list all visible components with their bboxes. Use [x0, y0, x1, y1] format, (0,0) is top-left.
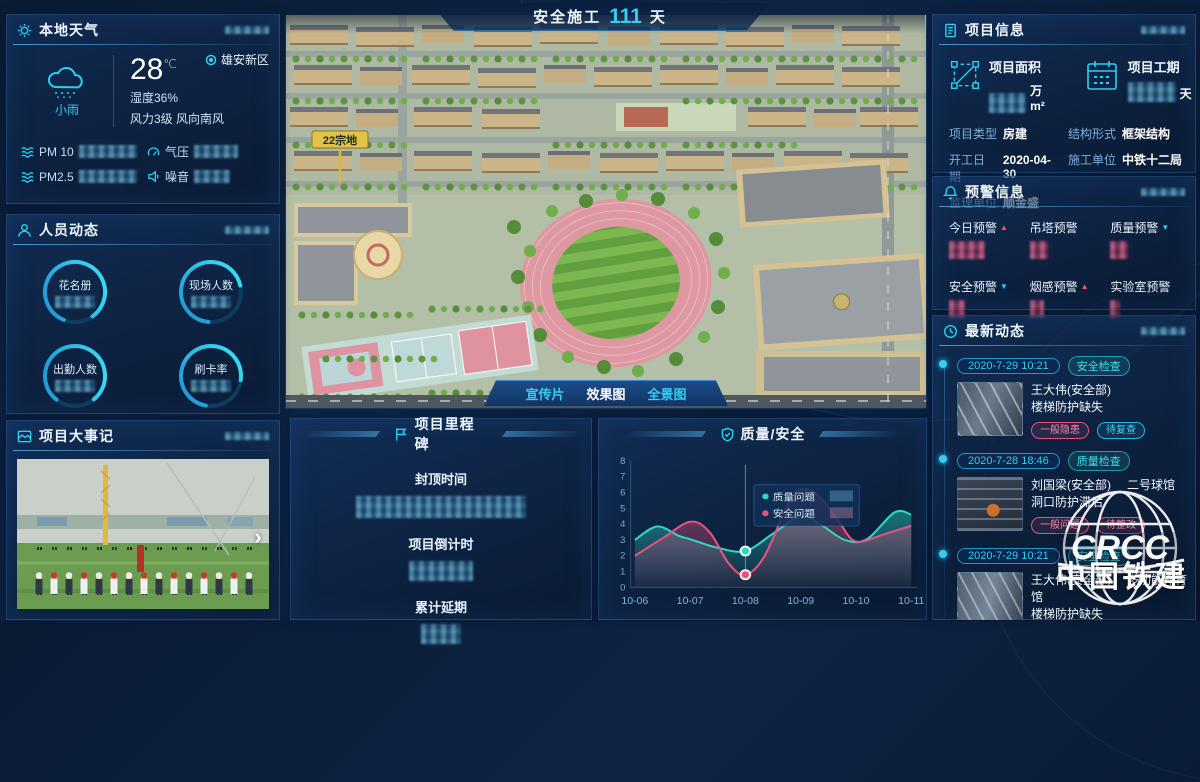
timeline-dot	[939, 455, 947, 463]
svg-text:7: 7	[620, 472, 625, 482]
wind-text: 风力3级 风向南风	[130, 110, 224, 127]
update-person: 王大伟(安全部)	[1031, 383, 1111, 397]
crcc-company-name: 中国铁建	[1056, 552, 1188, 596]
svg-text:3: 3	[620, 535, 625, 545]
air-wave-icon	[21, 170, 34, 183]
clock-icon	[943, 324, 958, 339]
project-info-panel: 项目信息 项目面积 万m² 项目工期	[932, 14, 1196, 173]
warnings-panel: 预警信息 今日预警 吊塔预警 质量预警 安全预警 烟感预警 实验室预警	[932, 176, 1196, 310]
field-structure: 结构形式框架结构	[1068, 125, 1183, 142]
svg-text:1: 1	[620, 567, 625, 577]
field-value: 框架结构	[1122, 125, 1170, 142]
personnel-panel-title: 人员动态	[39, 220, 99, 240]
quality-safety-panel: 质量/安全 01234567810-0610-0710-0810-0910-10…	[598, 418, 927, 620]
warning-label: 吊塔预警	[1030, 219, 1105, 236]
project-render-view: 22宗地 宣传片 效果图 全景图	[285, 14, 927, 409]
banner-days-value: 111	[609, 5, 642, 29]
area-survey-icon	[949, 57, 981, 93]
field-label: 结构形式	[1068, 125, 1116, 142]
photo-icon	[17, 429, 32, 444]
flag-icon	[394, 427, 409, 442]
field-value: 房建	[1003, 125, 1027, 142]
gauge-label: 出勤人数	[53, 361, 97, 377]
svg-text:6: 6	[620, 488, 625, 498]
gauge-swipe-rate: 刷卡率	[176, 341, 246, 411]
svg-text:2: 2	[620, 551, 625, 561]
pressure-gauge-icon	[147, 145, 160, 158]
stat-unit: 万m²	[1030, 82, 1054, 113]
redacted-value	[421, 624, 461, 644]
update-date: 2020-7-28 18:46	[957, 453, 1060, 469]
svg-text:8: 8	[620, 456, 625, 466]
milestone-panel-title: 项目里程碑	[415, 414, 489, 454]
redacted-header-code	[225, 432, 269, 440]
svg-text:5: 5	[620, 504, 625, 514]
events-photo	[17, 459, 269, 614]
redacted-header-code	[225, 26, 269, 34]
timeline-dot	[939, 360, 947, 368]
redacted-value	[356, 496, 526, 518]
stat-project-area: 项目面积 万m²	[949, 57, 1054, 113]
redacted-header-code	[225, 226, 269, 234]
banner-unit: 天	[650, 6, 667, 27]
gauge-label: 现场人数	[189, 277, 233, 293]
svg-text:4: 4	[620, 519, 625, 529]
redacted-value	[949, 241, 985, 259]
stat-project-duration: 项目工期 天	[1084, 57, 1192, 113]
view-tabs: 宣传片 效果图 全景图	[484, 380, 728, 406]
gauge-label: 花名册	[59, 277, 92, 293]
field-value: 中铁十二局	[1122, 151, 1182, 168]
shield-check-icon	[720, 427, 735, 442]
temperature-unit: ℃	[163, 57, 176, 71]
warning-label: 实验室预警	[1110, 278, 1185, 295]
stat-label: 项目面积	[989, 57, 1054, 76]
metric-label: PM2.5	[39, 170, 74, 184]
svg-text:10-11: 10-11	[898, 596, 925, 607]
svg-text:0: 0	[620, 583, 625, 593]
update-thumbnail	[957, 572, 1023, 620]
field-label: 施工单位	[1068, 151, 1116, 168]
update-thumbnail	[957, 477, 1023, 531]
tab-panorama[interactable]: 全景图	[648, 384, 687, 403]
warning-crane: 吊塔预警	[1030, 219, 1105, 264]
weather-panel: 本地天气 雄安新区 小雨 28℃ 湿度36% 风力3级 风向南风 PM 10	[6, 14, 280, 204]
region-indicator: 雄安新区	[205, 51, 269, 68]
plot-sign-label: 22宗地	[323, 133, 357, 147]
warnings-panel-title: 预警信息	[965, 182, 1025, 202]
redacted-value	[194, 170, 230, 183]
redacted-header-code	[1141, 327, 1185, 335]
update-item[interactable]: 2020-7-29 10:21 安全检查 王大伟(安全部) 楼梯防护缺失 一般隐…	[957, 356, 1187, 439]
svg-text:质量问题: 质量问题	[773, 491, 815, 504]
humidity-text: 湿度36%	[130, 89, 224, 106]
redacted-value	[55, 296, 95, 308]
personnel-panel: 人员动态 花名册 现场人数 出勤人数 刷卡率	[6, 214, 280, 414]
svg-text:安全问题: 安全问题	[773, 508, 815, 521]
speaker-icon	[147, 170, 160, 183]
gauge-roster: 花名册	[40, 257, 110, 327]
region-name: 雄安新区	[221, 51, 269, 68]
update-date: 2020-7-29 10:21	[957, 358, 1060, 374]
location-pin-icon	[205, 54, 217, 66]
sun-gear-icon	[17, 23, 32, 38]
redacted-value	[1128, 82, 1176, 102]
metric-label: 噪音	[165, 168, 189, 185]
weather-panel-title: 本地天气	[39, 20, 99, 40]
warning-label: 烟感预警	[1030, 278, 1105, 295]
document-icon	[943, 23, 958, 38]
banner-label: 安全施工	[533, 6, 601, 27]
hazard-tag: 一般隐患	[1031, 422, 1089, 439]
timeline-dot	[939, 550, 947, 558]
bell-icon	[943, 185, 958, 200]
gauge-attendance: 出勤人数	[40, 341, 110, 411]
metric-label: 气压	[165, 143, 189, 160]
redacted-value	[191, 296, 231, 308]
weather-condition: 小雨	[55, 101, 79, 118]
svg-text:10-10: 10-10	[842, 596, 869, 607]
update-category: 安全检查	[1068, 356, 1130, 376]
svg-text:10-09: 10-09	[787, 596, 814, 607]
project-info-title: 项目信息	[965, 20, 1025, 40]
warning-label: 质量预警	[1110, 219, 1185, 236]
safety-days-banner: 安全施工 111 天	[430, 3, 770, 31]
air-wave-icon	[21, 145, 34, 158]
warning-label: 今日预警	[949, 219, 1024, 236]
redacted-value	[194, 145, 238, 158]
metric-pm25: PM2.5	[21, 168, 141, 185]
milestone-label-countdown: 项目倒计时	[408, 534, 473, 553]
warning-label: 安全预警	[949, 278, 1024, 295]
field-label: 项目类型	[949, 125, 997, 142]
calendar-icon	[1084, 57, 1120, 93]
dashboard-background: { "banner": {"label": "安全施工", "days": "1…	[0, 0, 1200, 621]
gauge-onsite: 现场人数	[176, 257, 246, 327]
update-thumbnail	[957, 382, 1023, 436]
stat-unit: 天	[1180, 85, 1192, 102]
rain-cloud-icon	[44, 65, 90, 99]
milestone-label-delay: 累计延期	[415, 597, 467, 616]
redacted-value	[55, 380, 95, 392]
crcc-logo: CRCC	[1038, 476, 1200, 621]
svg-text:10-06: 10-06	[621, 596, 648, 607]
quality-safety-title: 质量/安全	[741, 424, 806, 444]
stat-label: 项目工期	[1128, 57, 1192, 76]
carousel-next-button[interactable]	[249, 522, 267, 552]
redacted-value	[79, 145, 137, 158]
status-tag: 待复查	[1097, 422, 1145, 439]
milestone-panel: 项目里程碑 封顶时间 项目倒计时 累计延期	[290, 418, 592, 620]
person-icon	[17, 223, 32, 238]
update-category: 质量检查	[1068, 451, 1130, 471]
metric-pressure: 气压	[147, 143, 267, 160]
redacted-value	[79, 170, 137, 183]
group-photo	[17, 459, 269, 609]
svg-text:10-08: 10-08	[732, 596, 759, 607]
svg-text:10-07: 10-07	[677, 596, 704, 607]
field-project-type: 项目类型房建	[949, 125, 1064, 142]
redacted-header-code	[1141, 26, 1185, 34]
project-events-panel: 项目大事记	[6, 420, 280, 620]
warning-today: 今日预警	[949, 219, 1024, 264]
milestone-label-topping: 封顶时间	[415, 469, 467, 488]
metric-label: PM 10	[39, 145, 74, 159]
warning-quality: 质量预警	[1110, 219, 1185, 264]
tab-rendering[interactable]: 效果图	[586, 384, 625, 403]
updates-panel-title: 最新动态	[965, 321, 1025, 341]
events-panel-title: 项目大事记	[39, 426, 114, 446]
redacted-value	[191, 380, 231, 392]
quality-safety-chart[interactable]: 01234567810-0610-0710-0810-0910-1010-11 …	[599, 449, 926, 619]
redacted-value	[989, 93, 1026, 113]
temperature-value: 28	[130, 53, 163, 86]
gauge-label: 刷卡率	[195, 361, 228, 377]
update-issue: 楼梯防护缺失	[1031, 399, 1145, 416]
redacted-header-code	[1141, 188, 1185, 196]
redacted-value	[1030, 241, 1048, 259]
metric-pm10: PM 10	[21, 143, 141, 160]
aerial-render: 22宗地	[286, 15, 926, 408]
metric-noise: 噪音	[147, 168, 267, 185]
tab-promo-video[interactable]: 宣传片	[525, 384, 564, 403]
redacted-value	[409, 561, 473, 581]
redacted-value	[1110, 241, 1128, 259]
